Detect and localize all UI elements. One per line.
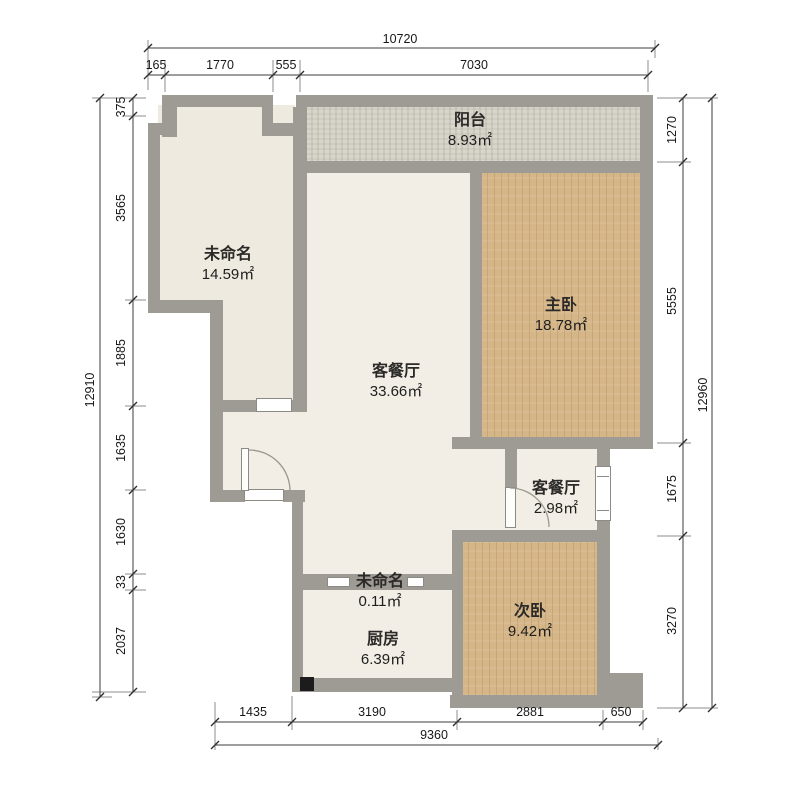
dim-left-total: 12910: [83, 373, 97, 408]
dim-bottom-seg-0: 1435: [239, 705, 267, 719]
room-balcony[interactable]: 阳台 8.93㎡: [448, 112, 492, 150]
dim-bottom-total: 9360: [420, 728, 448, 742]
dim-right-seg-1: 5555: [665, 287, 679, 315]
room-living-dining-name: 客餐厅: [372, 363, 420, 381]
dim-left-seg-0: 375: [114, 97, 128, 118]
floor-plan-canvas: 阳台 8.93㎡ 未命名 14.59㎡ 主卧 18.78㎡ 客餐厅 33.66㎡…: [0, 0, 800, 800]
room-kitchen-name: 厨房: [367, 631, 399, 649]
room-unnamed-small-name: 未命名: [356, 573, 404, 591]
dim-left-seg-4: 1630: [114, 518, 128, 546]
room-balcony-area: 8.93㎡: [448, 133, 492, 150]
room-unnamed-large[interactable]: 未命名 14.59㎡: [202, 246, 255, 284]
dim-left-seg-1: 3565: [114, 194, 128, 222]
dim-bottom-seg-2: 2881: [516, 705, 544, 719]
door-swing-arcs: [249, 450, 549, 527]
dim-bottom-seg-3: 650: [611, 705, 632, 719]
room-kitchen[interactable]: 厨房 6.39㎡: [361, 631, 405, 669]
room-balcony-name: 阳台: [454, 112, 486, 130]
room-unnamed-large-area: 14.59㎡: [202, 267, 255, 284]
room-second-bedroom-name: 次卧: [514, 603, 546, 621]
dim-right-seg-0: 1270: [665, 116, 679, 144]
dim-right-seg-2: 1675: [665, 475, 679, 503]
dim-right-total: 12960: [696, 378, 710, 413]
room-unnamed-small-area: 0.11㎡: [358, 594, 401, 611]
dim-right-seg-3: 3270: [665, 607, 679, 635]
dim-bottom-seg-1: 3190: [358, 705, 386, 719]
dim-left-seg-2: 1885: [114, 339, 128, 367]
room-master-bedroom-area: 18.78㎡: [535, 318, 588, 335]
room-hallway-name: 客餐厅: [532, 480, 580, 498]
room-second-bedroom-area: 9.42㎡: [508, 624, 552, 641]
dim-top-seg-2: 555: [276, 58, 297, 72]
dim-left-seg-3: 1635: [114, 434, 128, 462]
room-living-dining[interactable]: 客餐厅 33.66㎡: [370, 363, 423, 401]
room-unnamed-small[interactable]: 未命名 0.11㎡: [356, 573, 404, 611]
room-kitchen-area: 6.39㎡: [361, 652, 405, 669]
dim-left-seg-6: 2037: [114, 627, 128, 655]
room-living-dining-area: 33.66㎡: [370, 384, 423, 401]
dim-top-total: 10720: [383, 32, 418, 46]
room-master-bedroom-name: 主卧: [545, 297, 577, 315]
room-unnamed-large-name: 未命名: [204, 246, 252, 264]
dim-top-seg-3: 7030: [460, 58, 488, 72]
dim-top-seg-1: 1770: [206, 58, 234, 72]
dim-left-seg-5: 33: [114, 575, 128, 589]
room-second-bedroom[interactable]: 次卧 9.42㎡: [508, 603, 552, 641]
room-hallway[interactable]: 客餐厅 2.98㎡: [532, 480, 580, 518]
room-hallway-area: 2.98㎡: [534, 501, 578, 518]
dim-top-seg-0: 165: [146, 58, 167, 72]
room-master-bedroom[interactable]: 主卧 18.78㎡: [535, 297, 588, 335]
